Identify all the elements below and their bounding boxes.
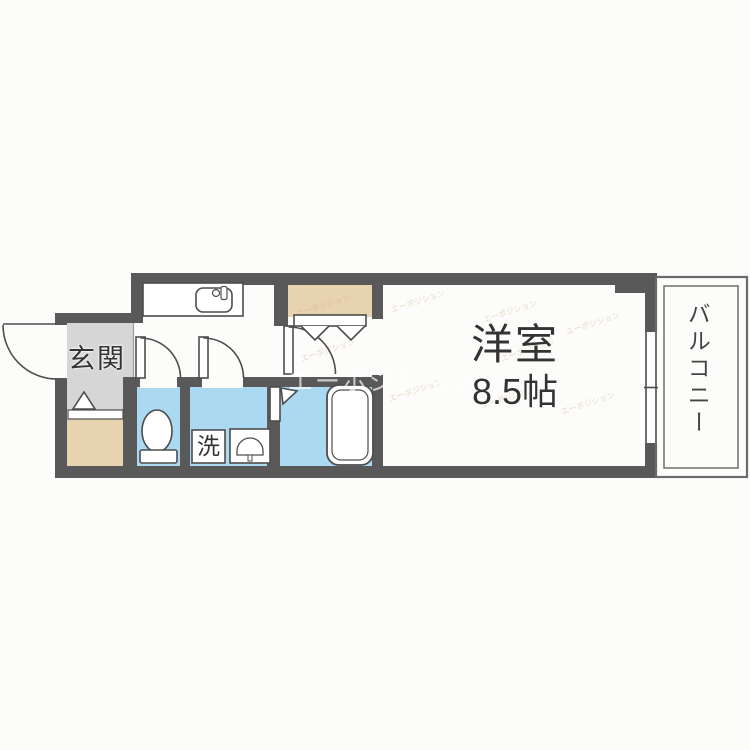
entrance-step-triangle [73,392,95,409]
door-swing-arc [204,338,244,378]
washroom-door-leaf [199,337,208,378]
balcony-label: バルコニー [684,302,709,472]
washbasin-icon [248,455,252,461]
entrance-label: 玄関 [64,345,130,375]
bifold-door-icon [301,326,329,340]
folding-door-icon [270,387,280,421]
faucet-icon [213,290,220,297]
bifold-door-icon [337,326,365,340]
toilet-icon [140,450,177,463]
bifold-door-icon [294,315,366,326]
floor-plan: エーポジション エーポジション エーポジション エーポジション エーポジション … [0,0,750,750]
entrance-door-arc [3,325,57,379]
toilet-door-leaf [136,337,145,378]
laundry-pan-label: 洗 [192,434,225,459]
faucet-icon [221,287,227,300]
watermark: エーポジション [288,362,477,398]
door-swing-arc [141,338,181,378]
entrance-step [68,410,123,419]
toilet-icon [142,410,172,452]
